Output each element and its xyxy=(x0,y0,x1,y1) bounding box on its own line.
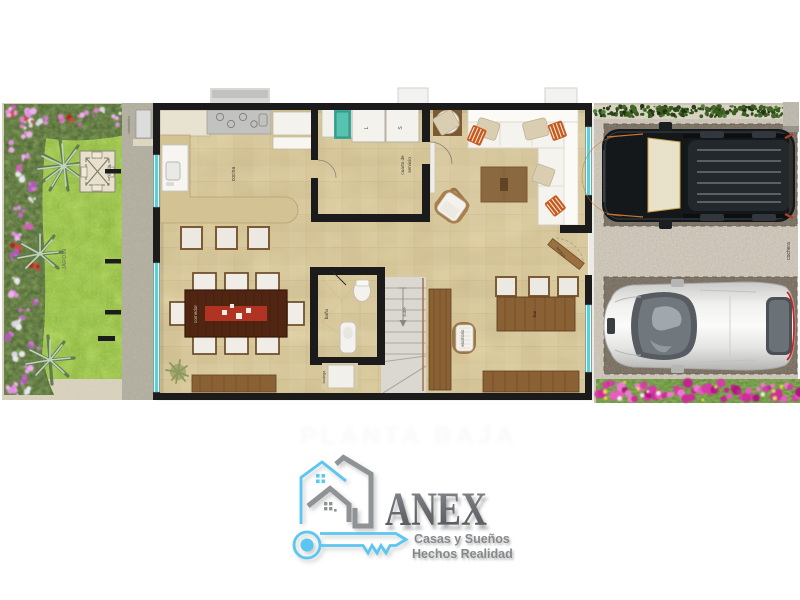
svg-text:baño: baño xyxy=(324,308,329,319)
svg-text:cocina: cocina xyxy=(231,167,237,182)
svg-text:comedor: comedor xyxy=(193,305,198,323)
svg-text:escritorio: escritorio xyxy=(460,329,465,347)
svg-text:bar: bar xyxy=(532,310,537,317)
svg-text:cuarto de: cuarto de xyxy=(400,155,405,175)
svg-text:Casas y Sueños: Casas y Sueños xyxy=(414,532,510,546)
svg-text:sube: sube xyxy=(402,307,407,317)
svg-text:bodega: bodega xyxy=(322,370,326,384)
svg-text:L: L xyxy=(364,126,370,129)
svg-text:cochera: cochera xyxy=(786,242,792,260)
svg-text:JARDIN: JARDIN xyxy=(62,248,68,269)
svg-text:calentador: calentador xyxy=(127,115,131,133)
svg-text:ANEX: ANEX xyxy=(385,483,487,536)
svg-text:Hechos Realidad: Hechos Realidad xyxy=(412,547,513,561)
svg-text:PLANTA BAJA: PLANTA BAJA xyxy=(300,422,518,450)
svg-text:servicio: servicio xyxy=(407,157,412,173)
